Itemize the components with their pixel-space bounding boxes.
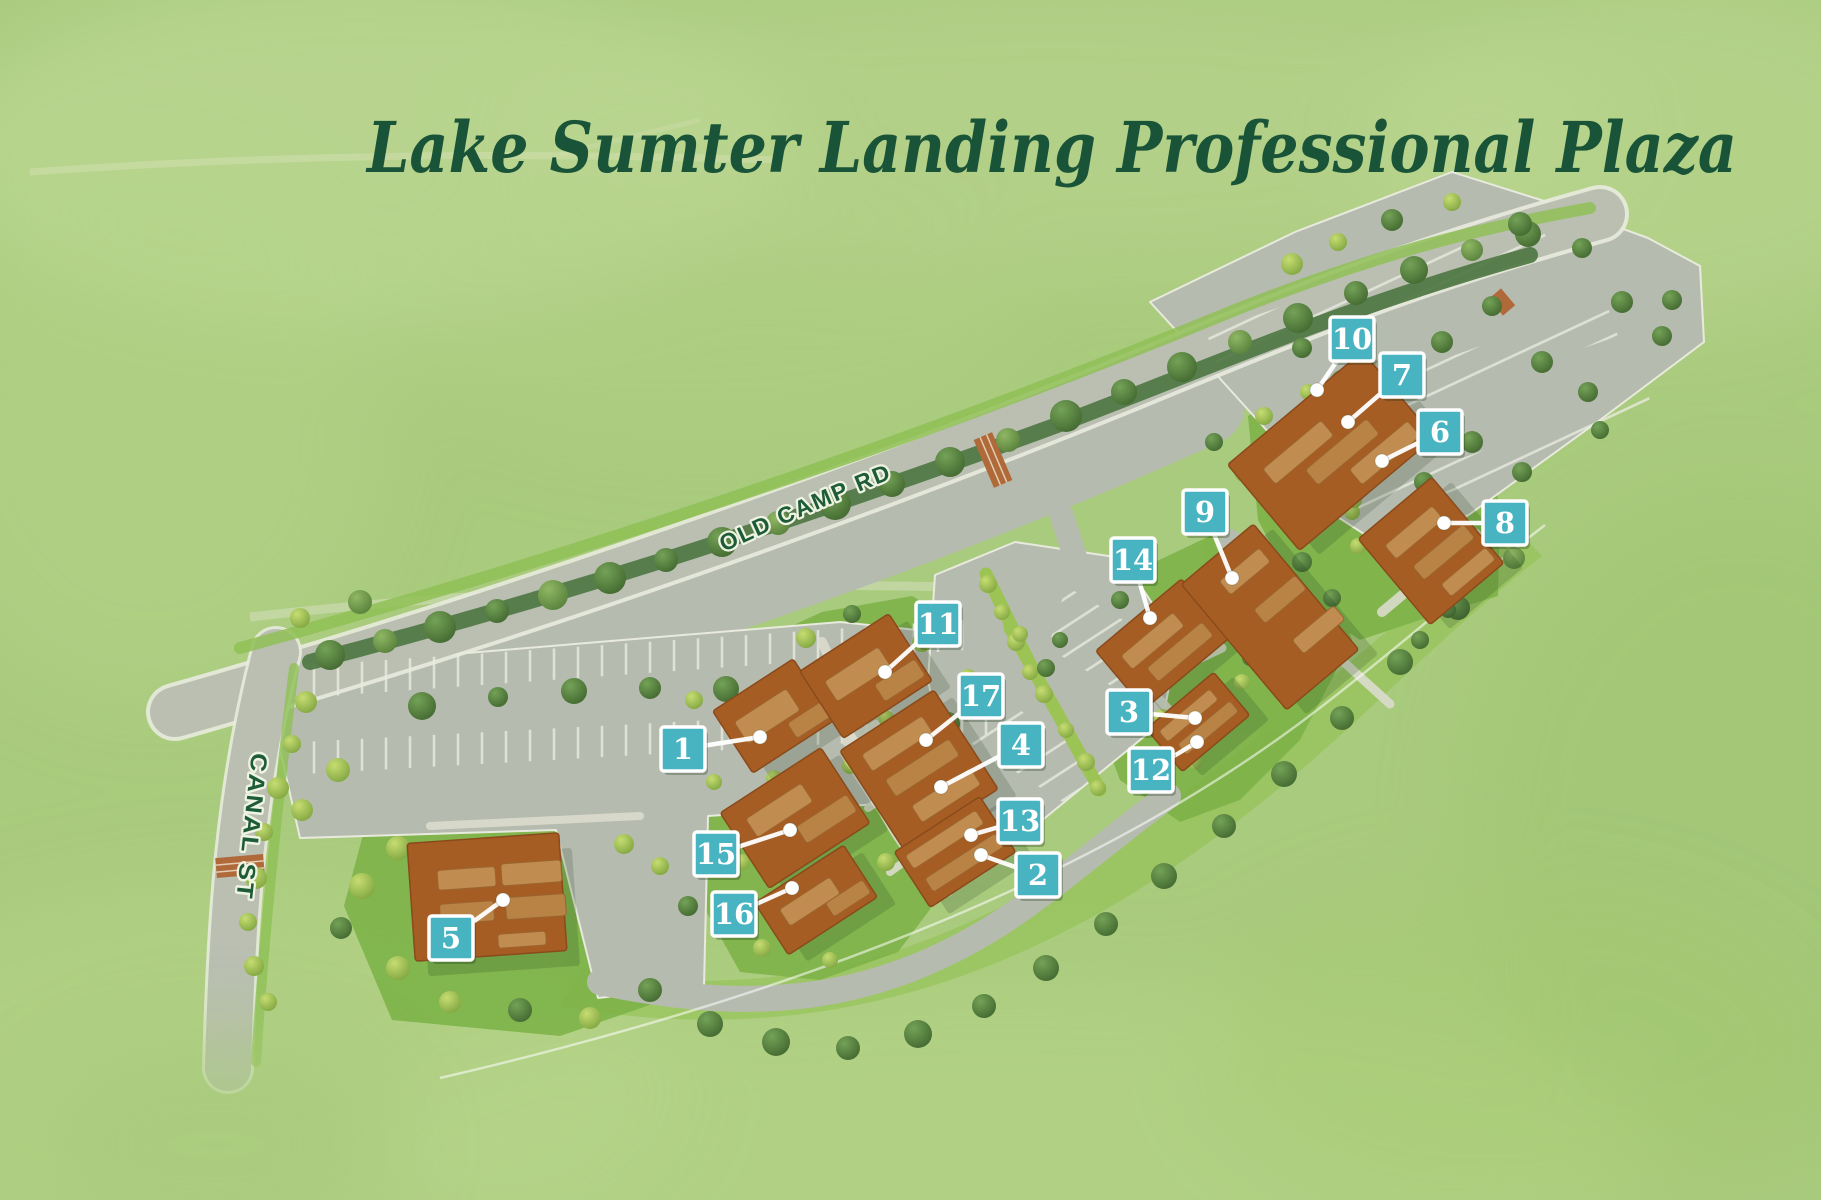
building-dot: [964, 828, 978, 842]
badge-number: 8: [1495, 506, 1515, 540]
badge-number: 15: [696, 837, 736, 871]
building-dot: [1310, 383, 1324, 397]
badge-number: 10: [1332, 322, 1372, 356]
badge-number: 5: [441, 921, 461, 955]
badge-number: 7: [1392, 358, 1412, 392]
building-dot: [1190, 735, 1204, 749]
badge-number: 6: [1430, 415, 1450, 449]
building-dot: [1225, 571, 1239, 585]
badge-number: 17: [961, 679, 1001, 713]
building-dot: [1375, 454, 1389, 468]
building-dot: [1188, 711, 1202, 725]
map-title: Lake Sumter Landing Professional Plaza: [365, 106, 1737, 189]
badge-number: 3: [1119, 695, 1139, 729]
building-dot: [1341, 415, 1355, 429]
badge-number: 1: [673, 732, 693, 766]
badge-number: 9: [1195, 495, 1215, 529]
building-dot: [934, 780, 948, 794]
building-dot: [1143, 611, 1157, 625]
building-dot: [496, 893, 510, 907]
building-dot: [753, 730, 767, 744]
site-map-page: OLD CAMP RD CANAL ST Lake Sumter Landing…: [0, 0, 1821, 1200]
badge-number: 14: [1113, 543, 1153, 577]
building-dot: [974, 848, 988, 862]
badge-number: 4: [1011, 728, 1031, 762]
badge-number: 16: [714, 897, 754, 931]
badge-number: 12: [1131, 753, 1171, 787]
building-dot: [785, 881, 799, 895]
building-dot: [878, 665, 892, 679]
badge-number: 13: [1000, 804, 1040, 838]
site-map: OLD CAMP RD CANAL ST Lake Sumter Landing…: [0, 0, 1821, 1200]
building-dot: [919, 733, 933, 747]
building-dot: [783, 823, 797, 837]
badge-number: 11: [918, 607, 958, 641]
badge-number: 2: [1028, 858, 1048, 892]
building-dot: [1437, 516, 1451, 530]
